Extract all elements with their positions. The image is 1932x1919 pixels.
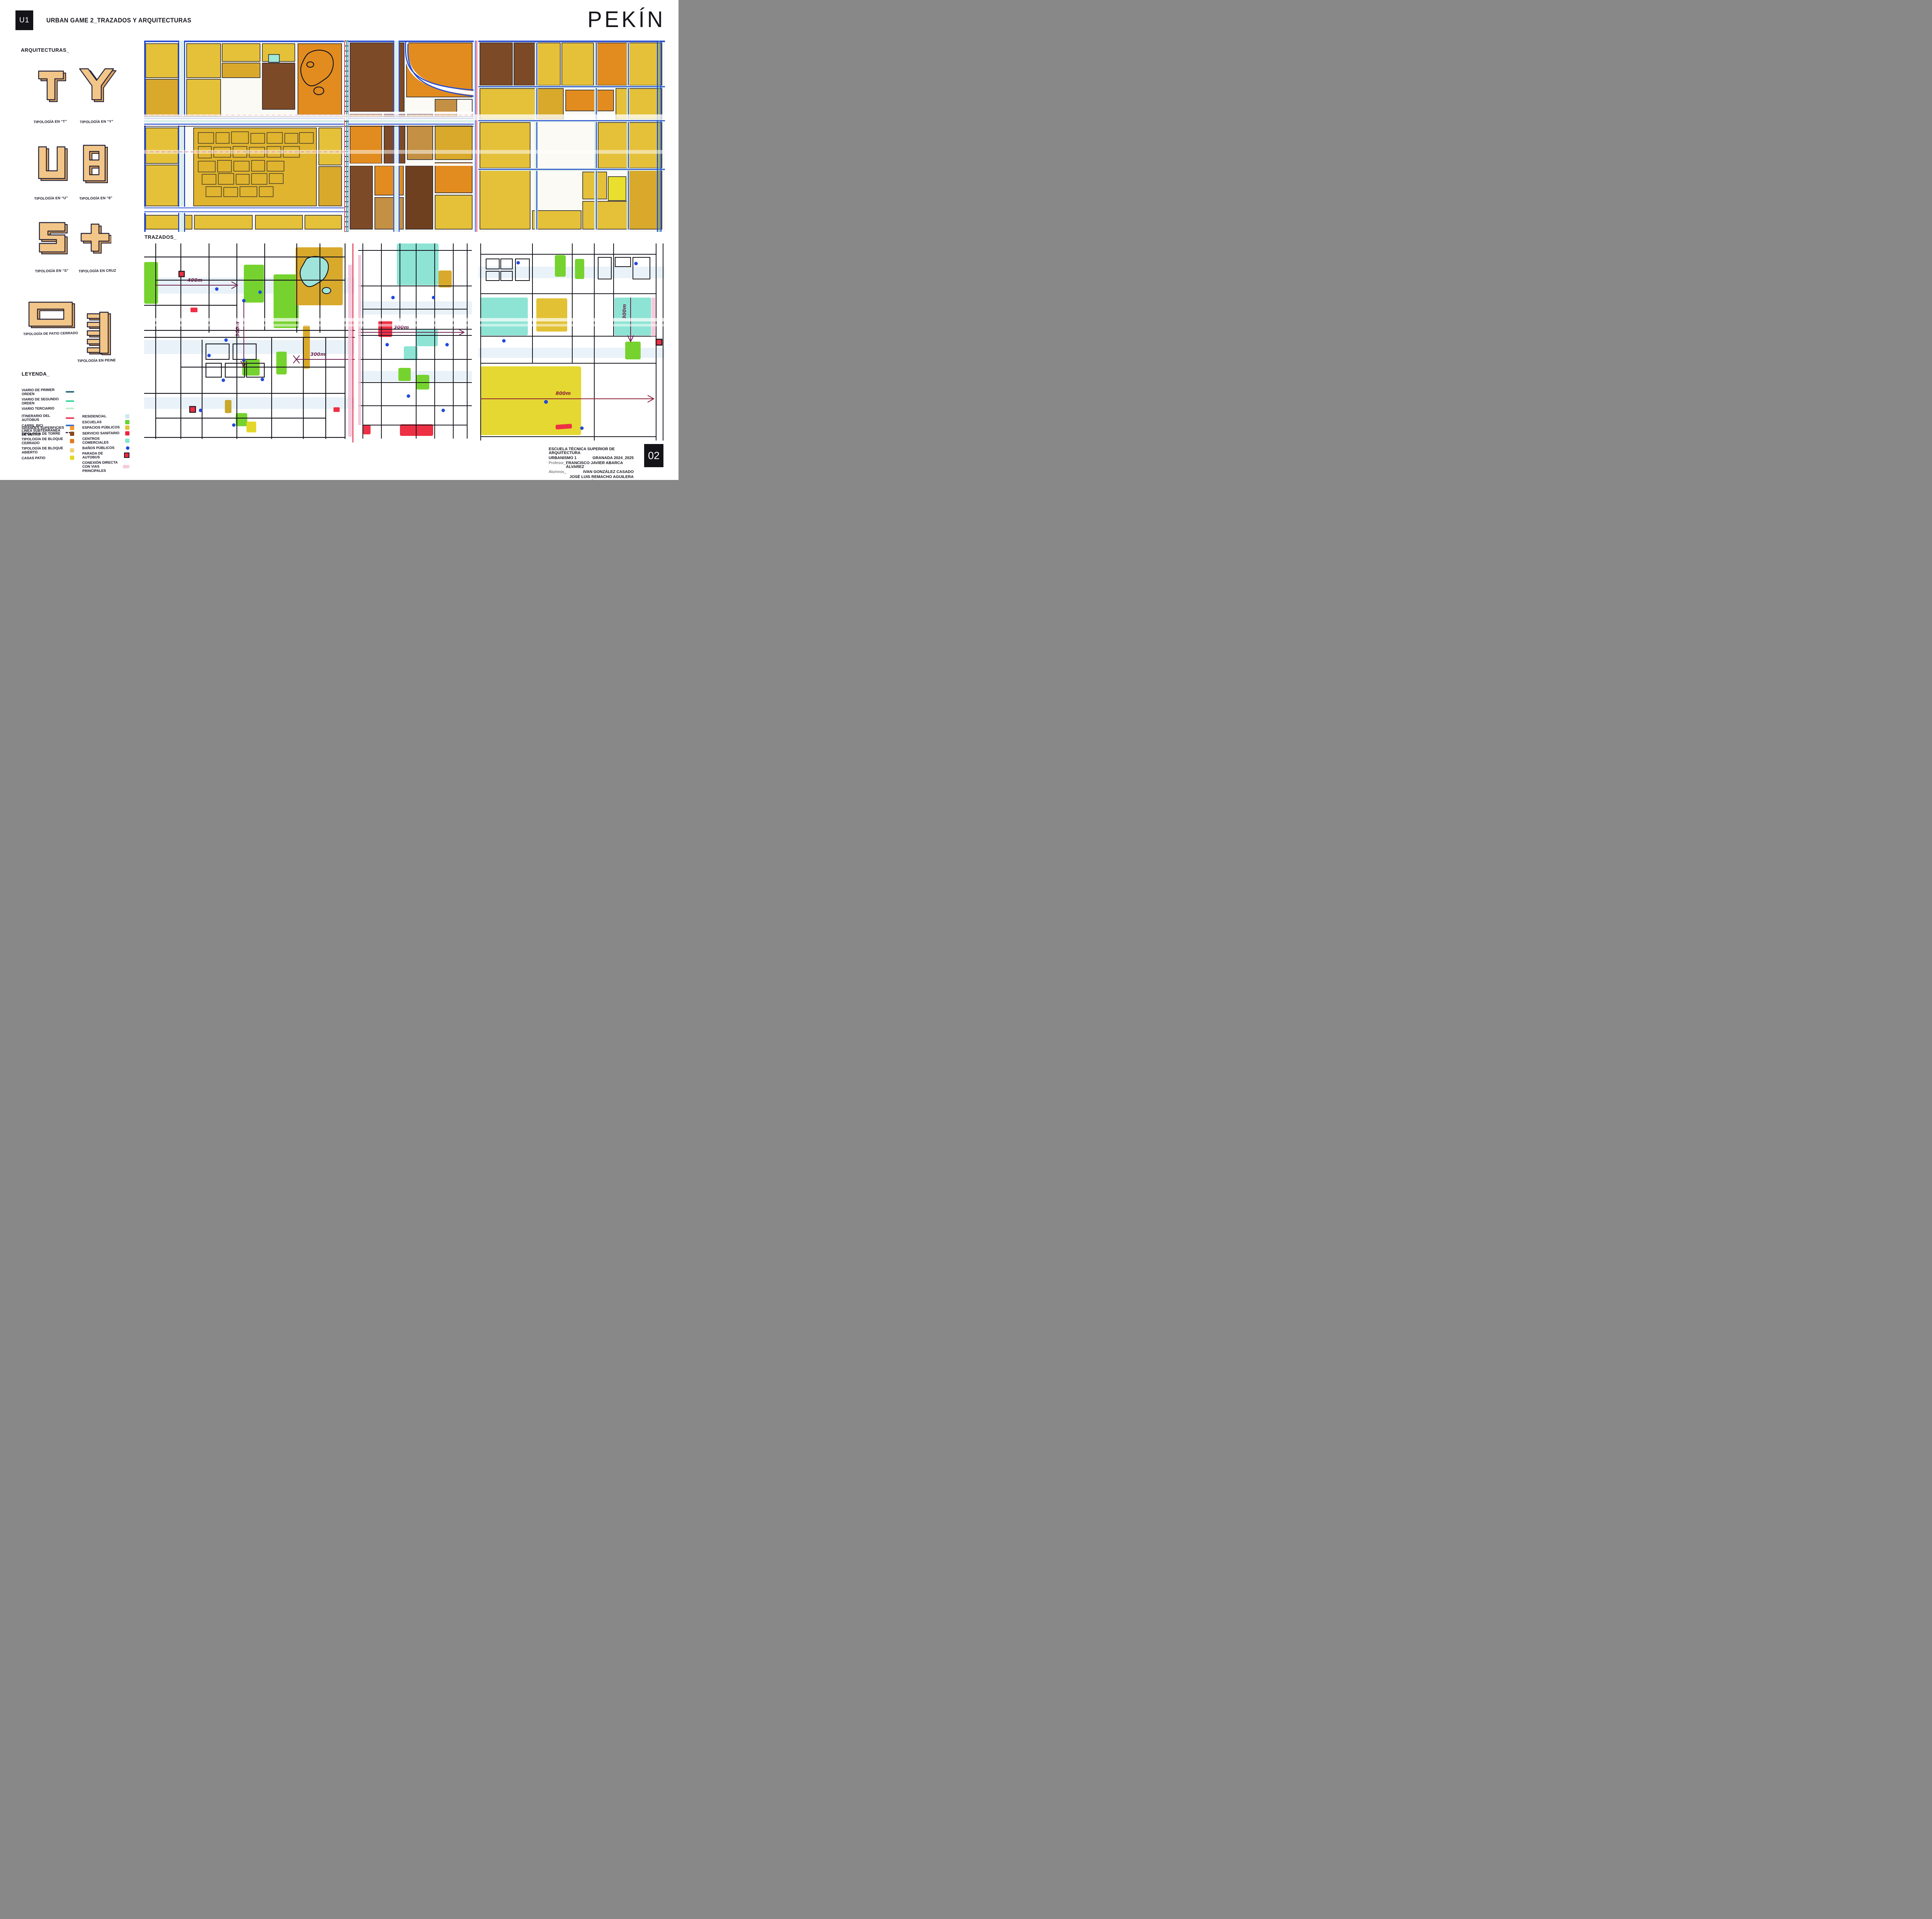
line-swatch (66, 417, 74, 419)
typology-label: TIPOLOGÍA EN “U” (34, 196, 68, 201)
legend-item-viario-primer-orden: VIARIO DE PRIMER ORDEN (22, 388, 74, 396)
park-block (298, 44, 342, 115)
divider-blue-line (475, 41, 476, 232)
typology-label: TIPOLOGÍA EN “S” (35, 269, 69, 273)
place-year: GRANADA 2024_2025 (592, 456, 634, 460)
typology-label: TIPOLOGÍA EN “Y” (80, 119, 114, 124)
typology-label: TIPOLOGÍA EN CRUZ (78, 269, 116, 273)
typology-8-icon (78, 143, 111, 183)
alumnos-label: Alumnos_ (549, 470, 566, 474)
bottom-map-panel-3: 800m 300m (478, 243, 665, 441)
area-swatch (125, 425, 129, 430)
measurement-label: 300m (310, 351, 325, 357)
top-map (144, 41, 667, 232)
pink-crayon-edge (348, 265, 352, 437)
profesor-name: FRANCISCO JAVIER ABARCA ÁLVAREZ (566, 461, 634, 470)
page-title: URBAN GAME 2_TRAZADOS Y ARQUITECTURAS (46, 17, 191, 24)
school-name: ESCUELA TÉCNICA SUPERIOR DE ARQUITECTURA (549, 447, 634, 456)
top-map-panel-2 (349, 41, 474, 232)
pink-crayon-edge (358, 255, 361, 425)
legend-item-espacios-publicos: ESPACIOS PÚBLICOS (82, 425, 129, 430)
legend-item-tipologia-torre: TIPOLOGÍA DE TORRE (22, 432, 74, 436)
bottom-map-panel-1: 400m 300m 300m (144, 243, 355, 442)
typology-t-icon (36, 66, 66, 103)
unit-code: U1 (19, 16, 29, 25)
legend-item-bloque-abierto: TIPOLOGÍA DE BLOQUE ABIERTO (22, 446, 74, 454)
legend-item-banos-publicos: BAÑOS PÚBLICOS (82, 446, 129, 450)
arquitecturas-section-label: ARQUITECTURAS_ (21, 47, 70, 53)
area-swatch (70, 456, 74, 460)
water-pond-small (269, 54, 279, 62)
typology-cruz-icon (79, 222, 111, 256)
poster-page: U1 URBAN GAME 2_TRAZADOS Y ARQUITECTURAS… (0, 0, 679, 480)
city-title: PEKÍN (587, 6, 665, 32)
typology-label: TIPOLOGÍA EN “8” (79, 196, 112, 201)
typology-peine-icon (82, 310, 112, 357)
area-swatch (70, 448, 74, 453)
area-swatch (70, 432, 74, 436)
legend-areas-left-list: GRANDES SUPERFICIES TIPOLOGÍA DE TORRE T… (22, 426, 74, 461)
bottom-map: 400m 300m 300m (144, 243, 667, 442)
measurement-label: 300m (235, 322, 240, 337)
typology-patio-cerrado-icon (26, 297, 76, 330)
typology-label: TIPOLOGÍA DE PATIO CERRADO (23, 331, 78, 336)
profesor-label: Profesor_ (549, 461, 566, 470)
line-swatch (66, 400, 74, 402)
leyenda-section-label: LEYENDA_ (22, 371, 50, 377)
alumno-name: JOSÉ LUIS REMACHO AGUILERA (549, 475, 634, 479)
measurement-label: 400m (187, 277, 202, 283)
legend-item-bloque-cerrado: TIPOLOGÍA DE BLOQUE CERRADO (22, 437, 74, 445)
line-swatch (66, 408, 74, 409)
typology-u-icon (36, 144, 68, 182)
area-swatch (125, 431, 129, 436)
alumno-name: IVAN GONZÁLEZ CASADO (583, 470, 634, 474)
page-number: 02 (648, 450, 660, 462)
top-map-panel-1 (144, 41, 344, 232)
legend-areas-right-list: RESIDENCIAL ESCUELAS ESPACIOS PÚBLICOS S… (82, 414, 129, 474)
rail-teal-line (346, 41, 347, 232)
legend-item-viario-segundo-orden: VIARIO DE SEGUNDO ORDEN (22, 397, 74, 405)
measurement-label: 300m (621, 304, 627, 319)
legend-item-conexion-directa: CONEXIÓN DIRECTA CON VIAS PRINCIPALES (82, 461, 129, 473)
legend-item-centros-comerciales: CENTROS COMERCIALES (82, 437, 129, 445)
pink-crayon-edge (651, 298, 655, 336)
page-number-badge: 02 (644, 444, 663, 467)
parada-autobus-mark (656, 339, 662, 345)
legend-item-viario-terciario: VIARIO TERCIARIO (22, 407, 74, 410)
typology-y-icon (77, 65, 117, 104)
legend-item-casas-patio: CASAS PATIO (22, 456, 74, 460)
lake-small (322, 288, 331, 294)
legend-item-itinerario-autobus: ITINERARIO DEL AUTOBUS (22, 414, 74, 422)
area-swatch (125, 420, 129, 424)
typology-label: TIPOLOGÍA EN “T” (34, 119, 67, 124)
legend-item-grandes-superficies: GRANDES SUPERFICIES (22, 426, 74, 430)
divider-red-line (476, 41, 477, 232)
dot-swatch (126, 446, 129, 450)
top-map-panel-3 (478, 41, 665, 232)
legend-item-escuelas: ESCUELAS (82, 420, 129, 424)
smudge-swatch (123, 465, 129, 468)
unit-code-badge: U1 (15, 10, 33, 30)
bordered-square-swatch (124, 453, 129, 458)
legend-item-residencial: RESIDENCIAL (82, 414, 129, 419)
red-edge-line (352, 243, 354, 442)
typology-label: TIPOLOGÍA EN PEINE (77, 358, 116, 363)
panel-divider (475, 41, 478, 232)
legend-item-parada-autobus: PARADA DE AUTOBUS (82, 451, 129, 459)
trazados-section-label: TRAZADOS_ (145, 234, 177, 240)
area-swatch (125, 414, 129, 419)
area-swatch (70, 439, 74, 443)
legend-item-servicio-sanitario: SERVICIO SANITARIO (82, 431, 129, 436)
area-swatch (70, 426, 74, 430)
area-swatch (125, 439, 129, 443)
measurement-label: 800m (556, 390, 571, 396)
line-swatch (66, 391, 74, 393)
measurement-label: 300m (394, 324, 409, 330)
credits-block: ESCUELA TÉCNICA SUPERIOR DE ARQUITECTURA… (549, 447, 634, 480)
bottom-map-panel-2: 300m (358, 243, 472, 439)
course-name: URBANISMO 1 (549, 456, 577, 460)
typology-s-icon (36, 219, 70, 256)
